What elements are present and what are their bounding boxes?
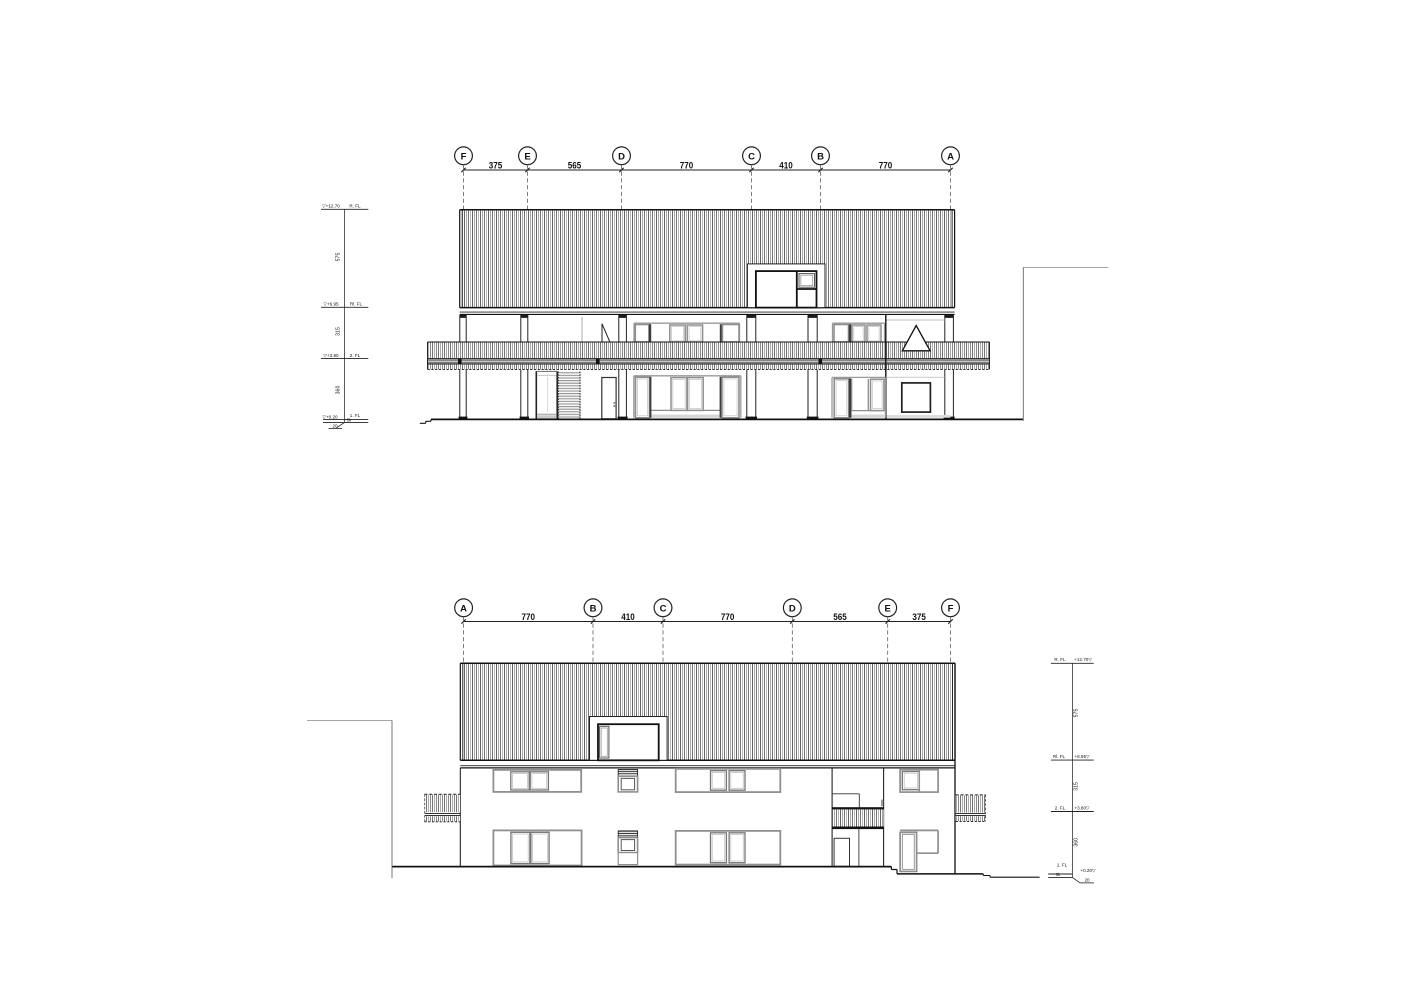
svg-text:+3.80▽: +3.80▽ <box>1074 805 1090 810</box>
svg-text:Rl. FL: Rl. FL <box>350 302 363 307</box>
svg-text:565: 565 <box>568 161 582 171</box>
svg-text:+6.95▽: +6.95▽ <box>1074 754 1090 759</box>
svg-text:+0.20▽: +0.20▽ <box>1080 868 1096 873</box>
svg-text:R. FL: R. FL <box>349 204 361 209</box>
svg-text:▽+6.95: ▽+6.95 <box>323 302 339 307</box>
svg-text:D: D <box>618 151 625 162</box>
svg-text:F: F <box>461 151 467 162</box>
svg-text:D: D <box>789 603 796 614</box>
svg-text:C: C <box>660 603 667 614</box>
svg-text:2. FL: 2. FL <box>1055 805 1066 810</box>
svg-text:E: E <box>524 151 530 162</box>
svg-text:F: F <box>948 603 954 614</box>
svg-text:+12.70▽: +12.70▽ <box>1074 657 1092 662</box>
svg-text:20: 20 <box>1084 878 1090 883</box>
svg-text:575: 575 <box>1074 709 1080 718</box>
svg-text:Rl. FL: Rl. FL <box>1053 754 1066 759</box>
svg-text:▽+3.80: ▽+3.80 <box>323 353 339 358</box>
svg-text:770: 770 <box>721 612 735 622</box>
svg-text:1. FL: 1. FL <box>350 413 361 418</box>
svg-text:375: 375 <box>912 612 926 622</box>
svg-text:B: B <box>817 151 824 162</box>
svg-text:20: 20 <box>332 424 338 429</box>
svg-text:▽+0.20: ▽+0.20 <box>322 414 338 419</box>
svg-text:C: C <box>748 151 755 162</box>
svg-text:2. FL: 2. FL <box>350 353 361 358</box>
svg-text:R. FL: R. FL <box>1054 657 1066 662</box>
svg-text:770: 770 <box>680 161 694 171</box>
svg-text:315: 315 <box>1074 782 1080 791</box>
svg-text:1. FL: 1. FL <box>1057 863 1068 868</box>
svg-text:360: 360 <box>336 386 342 395</box>
svg-text:▽+12.70: ▽+12.70 <box>322 204 340 209</box>
svg-text:575: 575 <box>336 253 342 262</box>
svg-text:A: A <box>460 603 467 614</box>
svg-text:565: 565 <box>833 612 847 622</box>
svg-text:770: 770 <box>879 161 893 171</box>
svg-text:770: 770 <box>522 612 536 622</box>
svg-text:315: 315 <box>336 327 342 336</box>
svg-text:A: A <box>947 151 954 162</box>
svg-text:375: 375 <box>489 161 503 171</box>
svg-text:410: 410 <box>779 161 793 171</box>
svg-text:410: 410 <box>621 612 635 622</box>
svg-text:E: E <box>885 603 891 614</box>
svg-text:B: B <box>590 603 597 614</box>
svg-text:360: 360 <box>1074 838 1080 847</box>
